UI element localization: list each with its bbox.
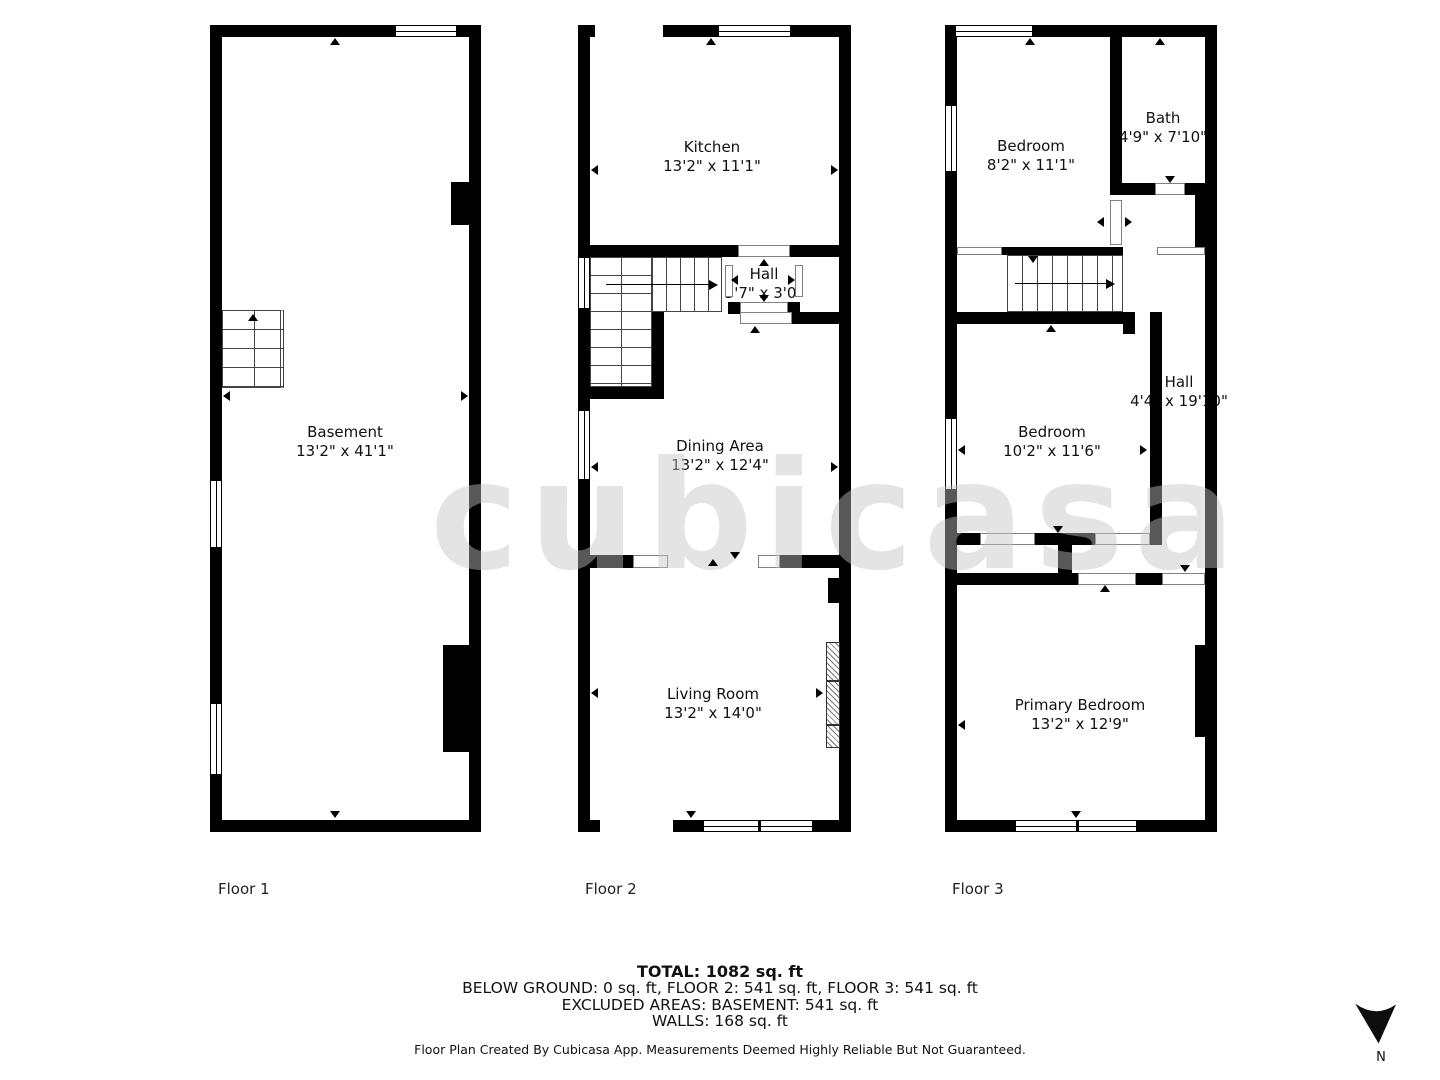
floor-plan-page: { "floors": [ { "label": "Floor 1", "roo… bbox=[0, 0, 1440, 1080]
floor-1-label: Floor 1 bbox=[218, 880, 270, 898]
window bbox=[210, 480, 222, 548]
room-dims: 13'2" x 41'1" bbox=[296, 442, 394, 461]
floor-2-plan: Kitchen 13'2" x 11'1" Hall 3'7" x 3'0" D… bbox=[578, 25, 851, 832]
door-opening bbox=[740, 312, 792, 324]
room-name: Bedroom bbox=[1003, 423, 1101, 442]
window-mullion bbox=[758, 821, 761, 831]
door-opening bbox=[1078, 573, 1136, 585]
room-label-bath: Bath 4'9" x 7'10" bbox=[1119, 109, 1207, 147]
cased-opening bbox=[957, 247, 1002, 255]
marker-arrow bbox=[1140, 445, 1147, 455]
room-name: Dining Area bbox=[671, 437, 769, 456]
marker-arrow bbox=[958, 445, 965, 455]
marker-arrow bbox=[816, 688, 823, 698]
room-dims: 13'2" x 14'0" bbox=[664, 704, 762, 723]
marker-arrow bbox=[591, 688, 598, 698]
chimney-block bbox=[443, 645, 469, 752]
below-ground-area: BELOW GROUND: 0 sq. ft, FLOOR 2: 541 sq.… bbox=[0, 980, 1440, 997]
marker-arrow bbox=[831, 462, 838, 472]
marker-arrow bbox=[750, 326, 760, 333]
wall-segment bbox=[957, 533, 980, 545]
wall-stub bbox=[1123, 312, 1135, 334]
wall-stub bbox=[828, 578, 839, 603]
cased-opening bbox=[980, 533, 1035, 545]
wall-segment bbox=[945, 312, 1135, 324]
room-dims: 13'2" x 11'1" bbox=[663, 157, 761, 176]
stairs bbox=[222, 310, 284, 388]
floor-1-plan: Basement 13'2" x 41'1" bbox=[210, 25, 481, 832]
wall-segment bbox=[1002, 247, 1123, 255]
fireplace-divider bbox=[826, 724, 840, 726]
room-dims: 13'2" x 12'4" bbox=[671, 456, 769, 475]
window bbox=[578, 410, 590, 480]
wall-opening bbox=[600, 820, 673, 832]
wall-segment bbox=[945, 573, 1078, 585]
marker-arrow bbox=[591, 165, 598, 175]
room-label-living-room: Living Room 13'2" x 14'0" bbox=[664, 685, 762, 723]
marker-arrow bbox=[958, 720, 965, 730]
wall-segment bbox=[780, 555, 839, 568]
marker-arrow bbox=[1155, 38, 1165, 45]
room-dims: 8'2" x 11'1" bbox=[987, 156, 1075, 175]
wall-segment bbox=[210, 820, 481, 832]
marker-arrow bbox=[591, 462, 598, 472]
room-dims: 13'2" x 12'9" bbox=[1015, 715, 1146, 734]
marker-arrow bbox=[759, 259, 769, 266]
marker-arrow bbox=[731, 275, 738, 285]
stair-direction-arrow bbox=[1015, 283, 1113, 284]
cased-opening bbox=[1157, 247, 1205, 255]
wall-segment bbox=[469, 25, 481, 832]
cased-opening bbox=[1162, 573, 1205, 585]
cased-opening bbox=[758, 555, 780, 568]
marker-arrow bbox=[1025, 38, 1035, 45]
room-label-kitchen: Kitchen 13'2" x 11'1" bbox=[663, 138, 761, 176]
room-name: Basement bbox=[296, 423, 394, 442]
stair-direction-arrow bbox=[248, 314, 258, 321]
wall-segment bbox=[792, 312, 851, 324]
marker-arrow bbox=[831, 165, 838, 175]
wall-stub bbox=[728, 302, 740, 314]
room-name: Living Room bbox=[664, 685, 762, 704]
marker-arrow bbox=[1100, 585, 1110, 592]
wall-segment bbox=[1150, 312, 1162, 545]
marker-arrow bbox=[1097, 217, 1104, 227]
marker-arrow bbox=[1053, 526, 1063, 533]
wall-segment bbox=[790, 245, 851, 257]
wall-segment bbox=[578, 387, 664, 399]
stair-divider bbox=[254, 311, 255, 387]
marker-arrow bbox=[1196, 720, 1203, 730]
door-opening bbox=[795, 265, 803, 297]
wall-segment bbox=[578, 245, 738, 257]
room-label-primary-bedroom: Primary Bedroom 13'2" x 12'9" bbox=[1015, 696, 1146, 734]
room-label-basement: Basement 13'2" x 41'1" bbox=[296, 423, 394, 461]
excluded-areas: EXCLUDED AREAS: BASEMENT: 541 sq. ft bbox=[0, 997, 1440, 1014]
stairs bbox=[590, 257, 652, 387]
room-dims: 10'2" x 11'6" bbox=[1003, 442, 1101, 461]
room-label-bedroom-2: Bedroom 10'2" x 11'6" bbox=[1003, 423, 1101, 461]
wall-segment bbox=[1110, 25, 1122, 195]
marker-arrow bbox=[330, 38, 340, 45]
room-name: Primary Bedroom bbox=[1015, 696, 1146, 715]
room-label-bedroom-1: Bedroom 8'2" x 11'1" bbox=[987, 137, 1075, 175]
marker-arrow bbox=[686, 811, 696, 818]
window bbox=[578, 257, 590, 309]
wall-segment bbox=[839, 25, 851, 832]
disclaimer-text: Floor Plan Created By Cubicasa App. Meas… bbox=[0, 1042, 1440, 1057]
walls-area: WALLS: 168 sq. ft bbox=[0, 1013, 1440, 1030]
stair-direction-arrow bbox=[606, 284, 716, 285]
wall-segment bbox=[1035, 533, 1095, 545]
wall-segment bbox=[652, 312, 664, 387]
marker-arrow bbox=[330, 811, 340, 818]
floor-2-label: Floor 2 bbox=[585, 880, 637, 898]
wall-stub bbox=[1136, 573, 1162, 585]
room-name: Kitchen bbox=[663, 138, 761, 157]
window-mullion bbox=[1076, 821, 1079, 831]
marker-arrow bbox=[706, 38, 716, 45]
door-opening bbox=[1155, 183, 1185, 195]
window bbox=[955, 25, 1033, 37]
marker-arrow bbox=[1046, 325, 1056, 332]
window bbox=[945, 418, 957, 490]
marker-arrow bbox=[759, 295, 769, 302]
marker-arrow bbox=[788, 275, 795, 285]
window bbox=[210, 703, 222, 775]
marker-arrow bbox=[1165, 176, 1175, 183]
marker-arrow bbox=[708, 559, 718, 566]
marker-arrow bbox=[223, 391, 230, 401]
area-summary: TOTAL: 1082 sq. ft BELOW GROUND: 0 sq. f… bbox=[0, 963, 1440, 1030]
marker-arrow bbox=[1028, 256, 1038, 263]
cased-opening bbox=[633, 555, 668, 568]
wall-opening bbox=[595, 25, 663, 37]
floor-3-plan: Bedroom 8'2" x 11'1" Bath 4'9" x 7'10" B… bbox=[945, 25, 1217, 832]
wall-segment bbox=[1110, 183, 1155, 195]
window bbox=[718, 25, 791, 37]
chimney-block bbox=[451, 182, 469, 225]
fireplace-hatch bbox=[826, 642, 840, 748]
floor-3-label: Floor 3 bbox=[952, 880, 1004, 898]
window bbox=[703, 820, 813, 832]
total-area: TOTAL: 1082 sq. ft bbox=[0, 963, 1440, 980]
window bbox=[1015, 820, 1137, 832]
marker-arrow bbox=[730, 552, 740, 559]
stair-divider bbox=[621, 258, 622, 386]
room-dims: 4'9" x 7'10" bbox=[1119, 128, 1207, 147]
room-name: Bath bbox=[1119, 109, 1207, 128]
room-name: Bedroom bbox=[987, 137, 1075, 156]
marker-arrow bbox=[1180, 565, 1190, 572]
wall-stub bbox=[1195, 190, 1207, 250]
cased-opening bbox=[1095, 533, 1150, 545]
north-arrow-icon bbox=[1350, 993, 1402, 1049]
window bbox=[395, 25, 457, 37]
room-label-dining-area: Dining Area 13'2" x 12'4" bbox=[671, 437, 769, 475]
fireplace-divider bbox=[826, 680, 840, 682]
marker-arrow bbox=[1071, 811, 1081, 818]
door-opening bbox=[738, 245, 790, 257]
north-label: N bbox=[1369, 1050, 1393, 1065]
door-opening bbox=[1110, 200, 1122, 245]
marker-arrow bbox=[461, 391, 468, 401]
marker-arrow bbox=[1125, 217, 1132, 227]
window bbox=[945, 105, 957, 172]
wall-stub bbox=[1058, 545, 1072, 575]
